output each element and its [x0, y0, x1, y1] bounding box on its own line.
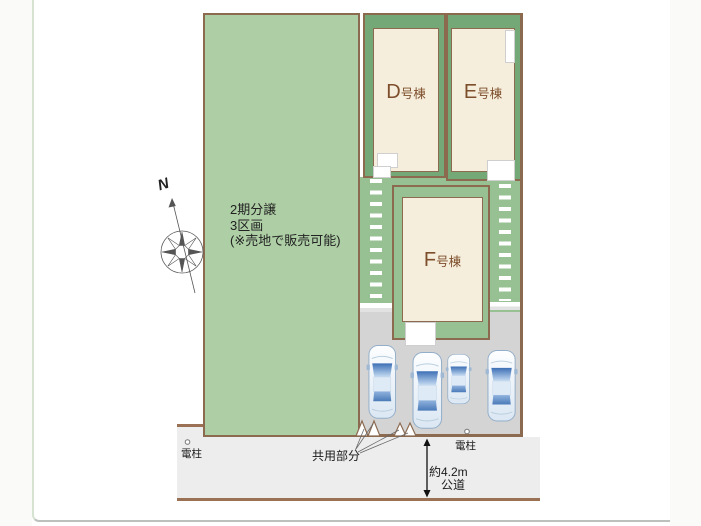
phase-line-3: (※売地で販売可能): [230, 233, 341, 249]
walkway-hatch-left: [370, 179, 382, 302]
road-kind-label: 公道: [441, 476, 465, 493]
building-f-label: F号棟: [402, 249, 483, 272]
utility-pole-right-label: 電柱: [455, 438, 476, 453]
page-margin-right: [670, 0, 701, 526]
walkway-hatch-right: [499, 184, 511, 301]
phase-line-1: 2期分譲: [230, 202, 341, 218]
parking-bottom-border: [357, 434, 522, 437]
phase-lot-text: 2期分譲 3区画 (※売地で販売可能): [230, 202, 341, 249]
phase-line-2: 3区画: [230, 218, 341, 234]
building-d-label: D号棟: [373, 81, 439, 104]
common-area-label: 共用部分: [312, 447, 360, 464]
road-bottom-border: [177, 498, 540, 501]
road-top-border: [177, 424, 205, 427]
north-arrow: [169, 198, 176, 208]
page-margin-left: [0, 0, 32, 526]
porch-f: [405, 322, 436, 346]
north-label: N: [156, 175, 172, 195]
utility-pole-left-label: 電柱: [181, 446, 202, 461]
balcony-e: [505, 30, 515, 63]
site-plan-canvas: 2期分譲 3区画 (※売地で販売可能) D号棟 E号棟 F号棟 電柱 電柱 共用…: [0, 0, 701, 526]
compass-icon: [161, 198, 203, 293]
porch-d-step: [373, 166, 391, 178]
public-road-right: [522, 437, 540, 500]
plan-right-border: [520, 13, 523, 437]
walkway-step-left: [360, 303, 392, 312]
porch-e: [487, 160, 515, 181]
walkway-step-right: [490, 302, 520, 310]
building-e-label: E号棟: [451, 81, 515, 104]
